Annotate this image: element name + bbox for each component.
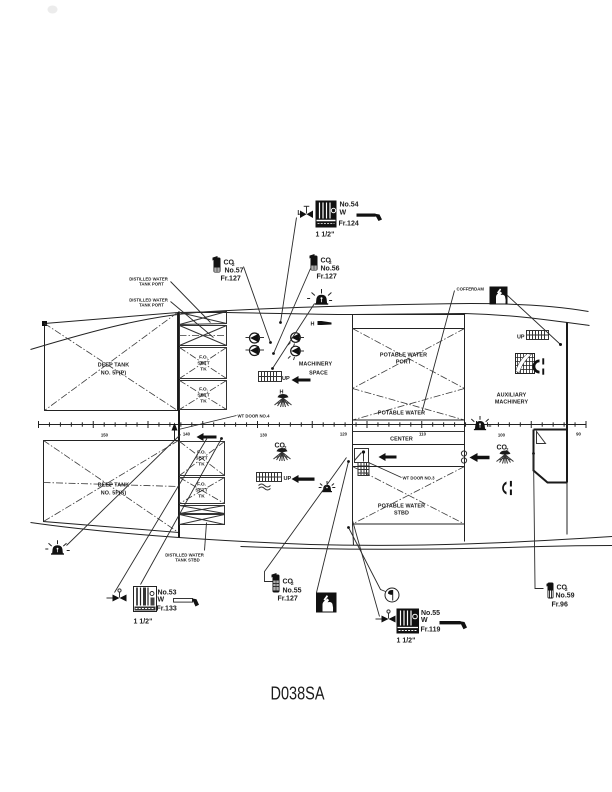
svg-text:W: W bbox=[158, 597, 165, 604]
svg-text:UP: UP bbox=[517, 335, 525, 341]
svg-text:TK: TK bbox=[200, 367, 207, 373]
svg-text:Fr.127: Fr.127 bbox=[221, 276, 241, 283]
svg-text:F.O.: F.O. bbox=[199, 355, 208, 361]
svg-text:100: 100 bbox=[498, 433, 506, 438]
svg-text:No.59: No.59 bbox=[556, 593, 575, 600]
svg-text:F.O.: F.O. bbox=[199, 387, 208, 393]
svg-text:TK: TK bbox=[198, 494, 205, 500]
svg-text:150: 150 bbox=[101, 433, 109, 438]
svg-text:PORT: PORT bbox=[396, 360, 412, 366]
svg-text:Fr.124: Fr.124 bbox=[339, 221, 359, 228]
svg-text:POTABLE WATER: POTABLE WATER bbox=[378, 411, 425, 417]
svg-text:SETT: SETT bbox=[195, 488, 207, 494]
svg-text:No.55: No.55 bbox=[421, 610, 440, 617]
svg-text:90: 90 bbox=[576, 432, 581, 437]
svg-text:UP: UP bbox=[282, 376, 290, 382]
svg-text:110: 110 bbox=[419, 432, 427, 437]
svg-text:TANK STBD: TANK STBD bbox=[175, 558, 200, 563]
svg-text:SETT: SETT bbox=[197, 393, 209, 399]
svg-text:WT DOOR NO.4: WT DOOR NO.4 bbox=[238, 414, 271, 419]
svg-text:W: W bbox=[340, 210, 347, 217]
svg-text:2: 2 bbox=[329, 260, 332, 265]
svg-text:TK: TK bbox=[200, 399, 207, 405]
svg-text:Fr.96: Fr.96 bbox=[552, 602, 568, 609]
svg-text:POTABLE WATER: POTABLE WATER bbox=[378, 504, 425, 510]
svg-text:UP: UP bbox=[284, 476, 292, 482]
svg-text:No.55: No.55 bbox=[283, 588, 302, 595]
svg-text:Fr.133: Fr.133 bbox=[157, 606, 177, 613]
svg-text:DEEP TANK: DEEP TANK bbox=[98, 363, 130, 369]
svg-text:1 1/2": 1 1/2" bbox=[134, 619, 153, 626]
svg-text:Fr.127: Fr.127 bbox=[278, 596, 298, 603]
svg-text:140: 140 bbox=[183, 432, 191, 437]
svg-text:1 1/2": 1 1/2" bbox=[316, 232, 335, 239]
svg-text:W: W bbox=[421, 617, 428, 624]
svg-text:TANK PORT: TANK PORT bbox=[139, 282, 164, 287]
svg-text:H: H bbox=[311, 322, 315, 328]
svg-text:POTABLE WATER: POTABLE WATER bbox=[380, 353, 427, 359]
svg-text:120: 120 bbox=[340, 432, 348, 437]
svg-text:CENTER: CENTER bbox=[390, 437, 413, 443]
svg-text:2: 2 bbox=[291, 581, 294, 586]
svg-text:F.O.: F.O. bbox=[197, 482, 206, 488]
svg-text:2: 2 bbox=[565, 587, 568, 592]
svg-text:No.54: No.54 bbox=[340, 202, 359, 209]
svg-text:TK: TK bbox=[198, 462, 205, 468]
svg-text:2: 2 bbox=[232, 262, 235, 267]
svg-text:TANK PORT: TANK PORT bbox=[139, 303, 164, 308]
svg-text:COFFERDAM: COFFERDAM bbox=[457, 287, 485, 292]
svg-text:AUXILIARY: AUXILIARY bbox=[497, 393, 527, 399]
svg-text:SETT: SETT bbox=[195, 456, 207, 462]
svg-text:MACHINERY: MACHINERY bbox=[495, 400, 529, 406]
svg-text:SETT: SETT bbox=[197, 361, 209, 367]
svg-text:DEEP TANK: DEEP TANK bbox=[98, 483, 130, 489]
svg-text:SPACE: SPACE bbox=[309, 371, 328, 377]
svg-text:Fr.127: Fr.127 bbox=[317, 274, 337, 281]
svg-text:WT DOOR NO.3: WT DOOR NO.3 bbox=[403, 476, 436, 481]
svg-text:D038SA: D038SA bbox=[271, 684, 325, 704]
svg-text:MACHINERY: MACHINERY bbox=[299, 362, 333, 368]
svg-text:Fr.119: Fr.119 bbox=[421, 627, 441, 634]
svg-text:NO. 5F(P): NO. 5F(P) bbox=[101, 371, 127, 377]
svg-text:No.53: No.53 bbox=[158, 590, 177, 597]
svg-text:No.56: No.56 bbox=[321, 266, 340, 273]
svg-text:No.57: No.57 bbox=[225, 268, 244, 275]
svg-text:STBD: STBD bbox=[394, 511, 409, 517]
svg-text:130: 130 bbox=[260, 433, 268, 438]
svg-text:1 1/2": 1 1/2" bbox=[397, 638, 416, 645]
